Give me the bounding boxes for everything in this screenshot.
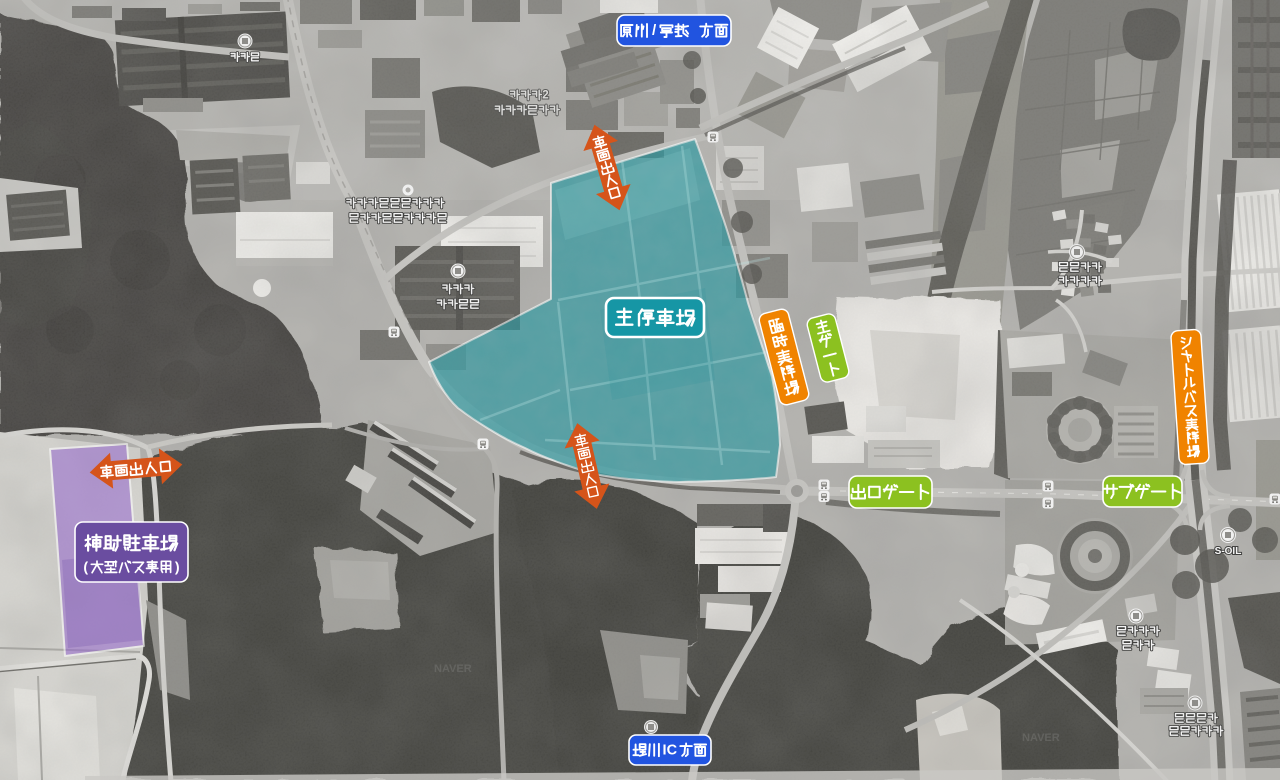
svg-text:IC: IC: [663, 742, 678, 758]
svg-text:): ): [175, 559, 180, 575]
svg-text:(: (: [83, 559, 88, 575]
